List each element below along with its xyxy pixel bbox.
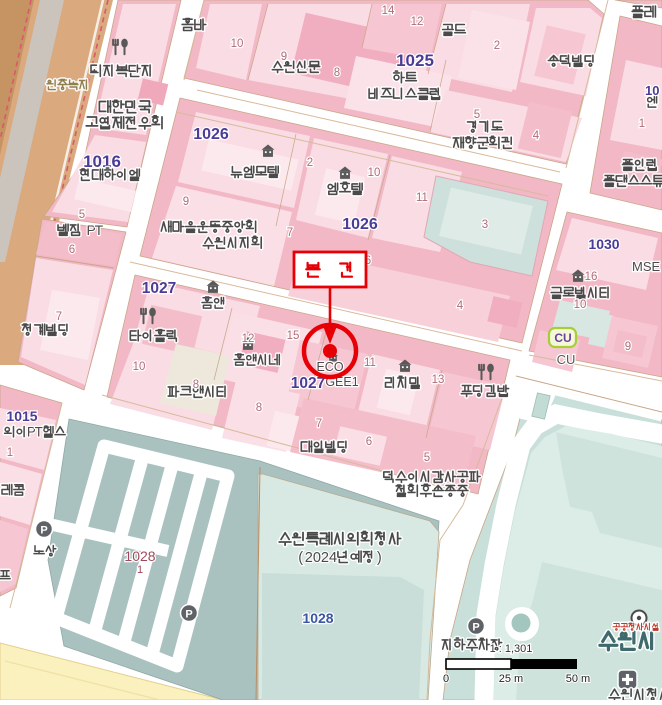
svg-text:4: 4 [457, 300, 464, 312]
svg-text:0: 0 [313, 550, 321, 566]
svg-text:1: 1 [7, 447, 13, 459]
svg-text:6: 6 [366, 436, 372, 448]
svg-text:CU: CU [554, 331, 571, 345]
svg-text:5: 5 [79, 209, 85, 221]
svg-text:2: 2 [305, 550, 313, 566]
svg-text:1026: 1026 [342, 216, 378, 233]
svg-text:0: 0 [443, 673, 449, 685]
svg-text:1015: 1015 [6, 408, 37, 424]
svg-text:(: ( [298, 550, 303, 566]
svg-text:10: 10 [133, 361, 146, 373]
svg-text:2: 2 [494, 40, 500, 52]
svg-text:8: 8 [256, 402, 262, 414]
svg-text:T: T [35, 425, 43, 440]
svg-text:T: T [95, 222, 104, 238]
svg-text:1030: 1030 [588, 236, 619, 252]
svg-text:15: 15 [287, 330, 300, 342]
svg-text:MSE: MSE [632, 259, 661, 274]
svg-text:12: 12 [242, 333, 255, 345]
svg-text:1028: 1028 [302, 610, 333, 626]
svg-text:8: 8 [193, 379, 199, 391]
svg-text:25 m: 25 m [499, 673, 523, 685]
svg-text:1028: 1028 [124, 548, 155, 564]
svg-text:8: 8 [334, 67, 340, 79]
svg-text:9: 9 [281, 51, 287, 63]
svg-text:): ) [377, 550, 382, 566]
svg-text:1027: 1027 [291, 375, 325, 392]
svg-text:13: 13 [432, 374, 445, 386]
svg-text:9: 9 [183, 196, 189, 208]
svg-text:50 m: 50 m [566, 673, 590, 685]
svg-text:1 : 1,301: 1 : 1,301 [490, 643, 533, 655]
svg-text:1025: 1025 [396, 51, 434, 70]
svg-text:12: 12 [411, 16, 424, 28]
svg-text:2: 2 [307, 157, 313, 169]
svg-text:10: 10 [368, 167, 381, 179]
svg-text:4: 4 [533, 130, 540, 142]
svg-text:16: 16 [585, 271, 598, 283]
svg-text:P: P [185, 608, 192, 620]
svg-text:10: 10 [574, 299, 587, 311]
svg-text:10: 10 [231, 38, 244, 50]
svg-text:10: 10 [645, 83, 659, 98]
svg-text:14: 14 [382, 5, 395, 17]
svg-text:1: 1 [639, 118, 645, 130]
svg-text:2: 2 [321, 550, 329, 566]
svg-text:P: P [472, 621, 479, 633]
svg-text:6: 6 [69, 244, 75, 256]
svg-text:7: 7 [56, 311, 62, 323]
svg-text:4: 4 [329, 550, 337, 566]
svg-text:11: 11 [364, 357, 376, 369]
svg-text:7: 7 [316, 418, 322, 430]
svg-text:CU: CU [557, 352, 576, 367]
svg-text:3: 3 [482, 219, 488, 231]
svg-text:1027: 1027 [142, 280, 176, 297]
svg-text:7: 7 [287, 227, 293, 239]
svg-text:9: 9 [625, 341, 631, 353]
svg-text:1026: 1026 [193, 126, 229, 143]
svg-text:5: 5 [474, 109, 480, 121]
svg-text:P: P [40, 524, 47, 536]
svg-text:5: 5 [424, 452, 430, 464]
svg-text:1: 1 [137, 564, 143, 576]
svg-text:11: 11 [416, 192, 428, 204]
svg-text:ECO: ECO [316, 360, 343, 374]
